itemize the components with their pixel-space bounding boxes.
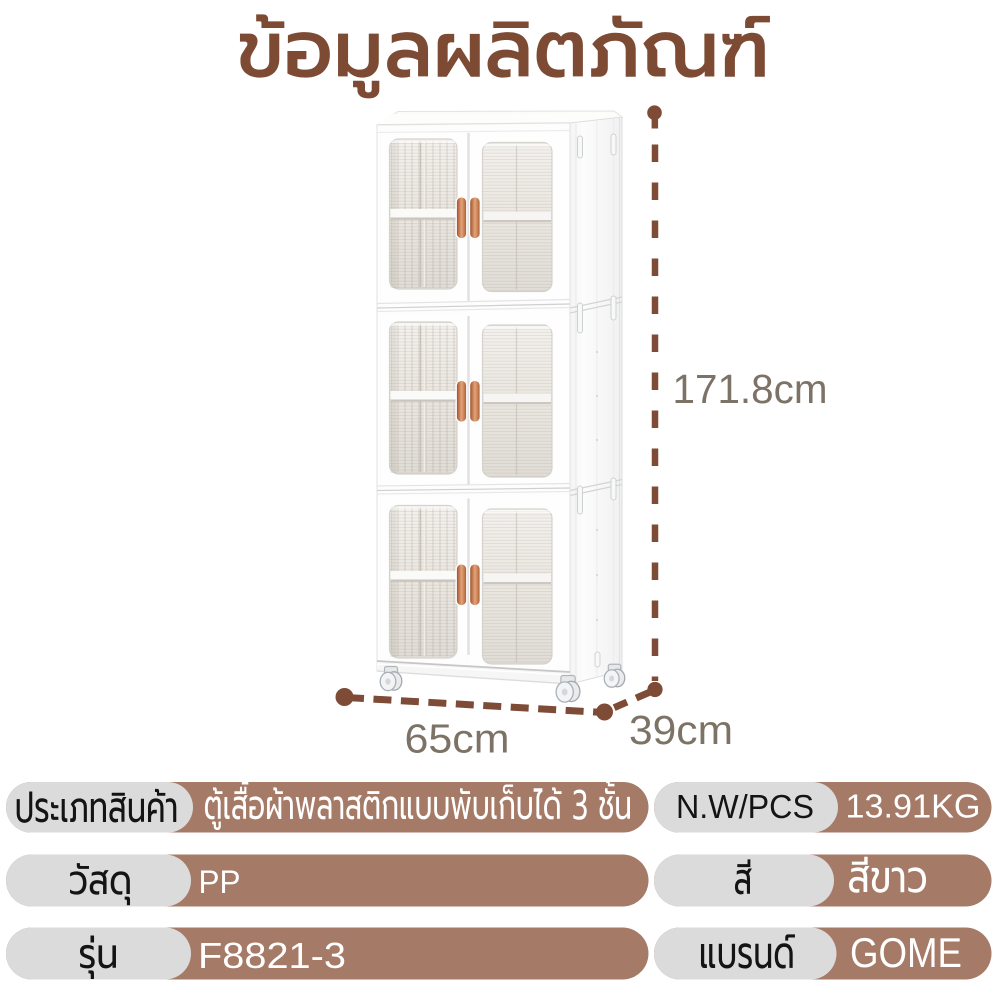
svg-text:65cm: 65cm (405, 716, 510, 762)
svg-text:39cm: 39cm (629, 707, 733, 753)
svg-text:171.8cm: 171.8cm (673, 366, 828, 412)
svg-text:PP: PP (199, 863, 241, 900)
svg-text:13.91KG: 13.91KG (846, 789, 981, 826)
svg-text:GOME: GOME (850, 929, 962, 976)
svg-text:N.W/PCS: N.W/PCS (676, 789, 814, 826)
svg-text:F8821-3: F8821-3 (198, 935, 346, 976)
